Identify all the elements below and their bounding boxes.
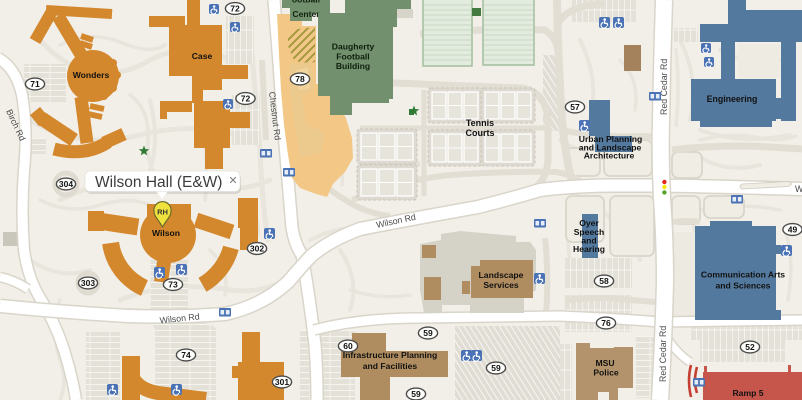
svg-text:and Facilities: and Facilities — [363, 361, 418, 371]
svg-text:60: 60 — [343, 341, 353, 351]
svg-text:Wilson: Wilson — [152, 228, 180, 238]
svg-text:58: 58 — [599, 276, 609, 286]
svg-text:304: 304 — [59, 179, 73, 189]
svg-text:301: 301 — [275, 377, 289, 387]
svg-text:76: 76 — [601, 318, 611, 328]
svg-text:57: 57 — [570, 102, 580, 112]
svg-text:Ramp 5: Ramp 5 — [732, 388, 763, 398]
svg-text:302: 302 — [250, 244, 264, 254]
svg-text:Red Cedar Rd: Red Cedar Rd — [658, 326, 668, 382]
svg-text:Daugherty: Daugherty — [332, 42, 375, 52]
svg-text:49: 49 — [788, 225, 798, 235]
svg-text:72: 72 — [230, 4, 240, 14]
svg-text:Infrastructure Planning: Infrastructure Planning — [343, 350, 438, 360]
svg-text:Tennis: Tennis — [466, 118, 494, 128]
svg-text:73: 73 — [168, 280, 178, 290]
svg-text:Case: Case — [192, 51, 213, 61]
svg-text:Football: Football — [336, 51, 369, 61]
svg-text:RH: RH — [157, 208, 168, 217]
svg-text:72: 72 — [241, 94, 251, 104]
svg-text:59: 59 — [423, 328, 433, 338]
svg-text:Red Cedar Rd: Red Cedar Rd — [659, 59, 669, 115]
svg-text:Communication Arts: Communication Arts — [701, 270, 785, 280]
svg-text:and Sciences: and Sciences — [716, 281, 771, 291]
svg-text:59: 59 — [491, 363, 501, 373]
svg-text:Police: Police — [593, 368, 619, 378]
svg-text:Landscape: Landscape — [479, 270, 524, 280]
svg-text:Services: Services — [483, 280, 519, 290]
svg-text:Building: Building — [336, 61, 370, 71]
svg-text:Architecture: Architecture — [584, 151, 635, 161]
svg-text:Hearing: Hearing — [573, 244, 605, 254]
svg-text:W: W — [795, 184, 802, 194]
svg-text:MSU: MSU — [595, 358, 614, 368]
svg-text:59: 59 — [411, 389, 421, 399]
svg-text:78: 78 — [295, 74, 305, 84]
svg-text:✕: ✕ — [228, 175, 237, 187]
svg-text:71: 71 — [30, 79, 40, 89]
svg-text:Engineering: Engineering — [707, 94, 758, 104]
svg-text:Center: Center — [292, 9, 320, 19]
svg-text:52: 52 — [745, 342, 755, 352]
svg-text:74: 74 — [181, 350, 191, 360]
svg-text:Wilson Hall (E&W): Wilson Hall (E&W) — [95, 174, 222, 191]
svg-text:303: 303 — [81, 278, 95, 288]
svg-text:Courts: Courts — [466, 128, 495, 138]
svg-text:ootball: ootball — [292, 0, 320, 5]
svg-text:Wonders: Wonders — [73, 70, 110, 80]
